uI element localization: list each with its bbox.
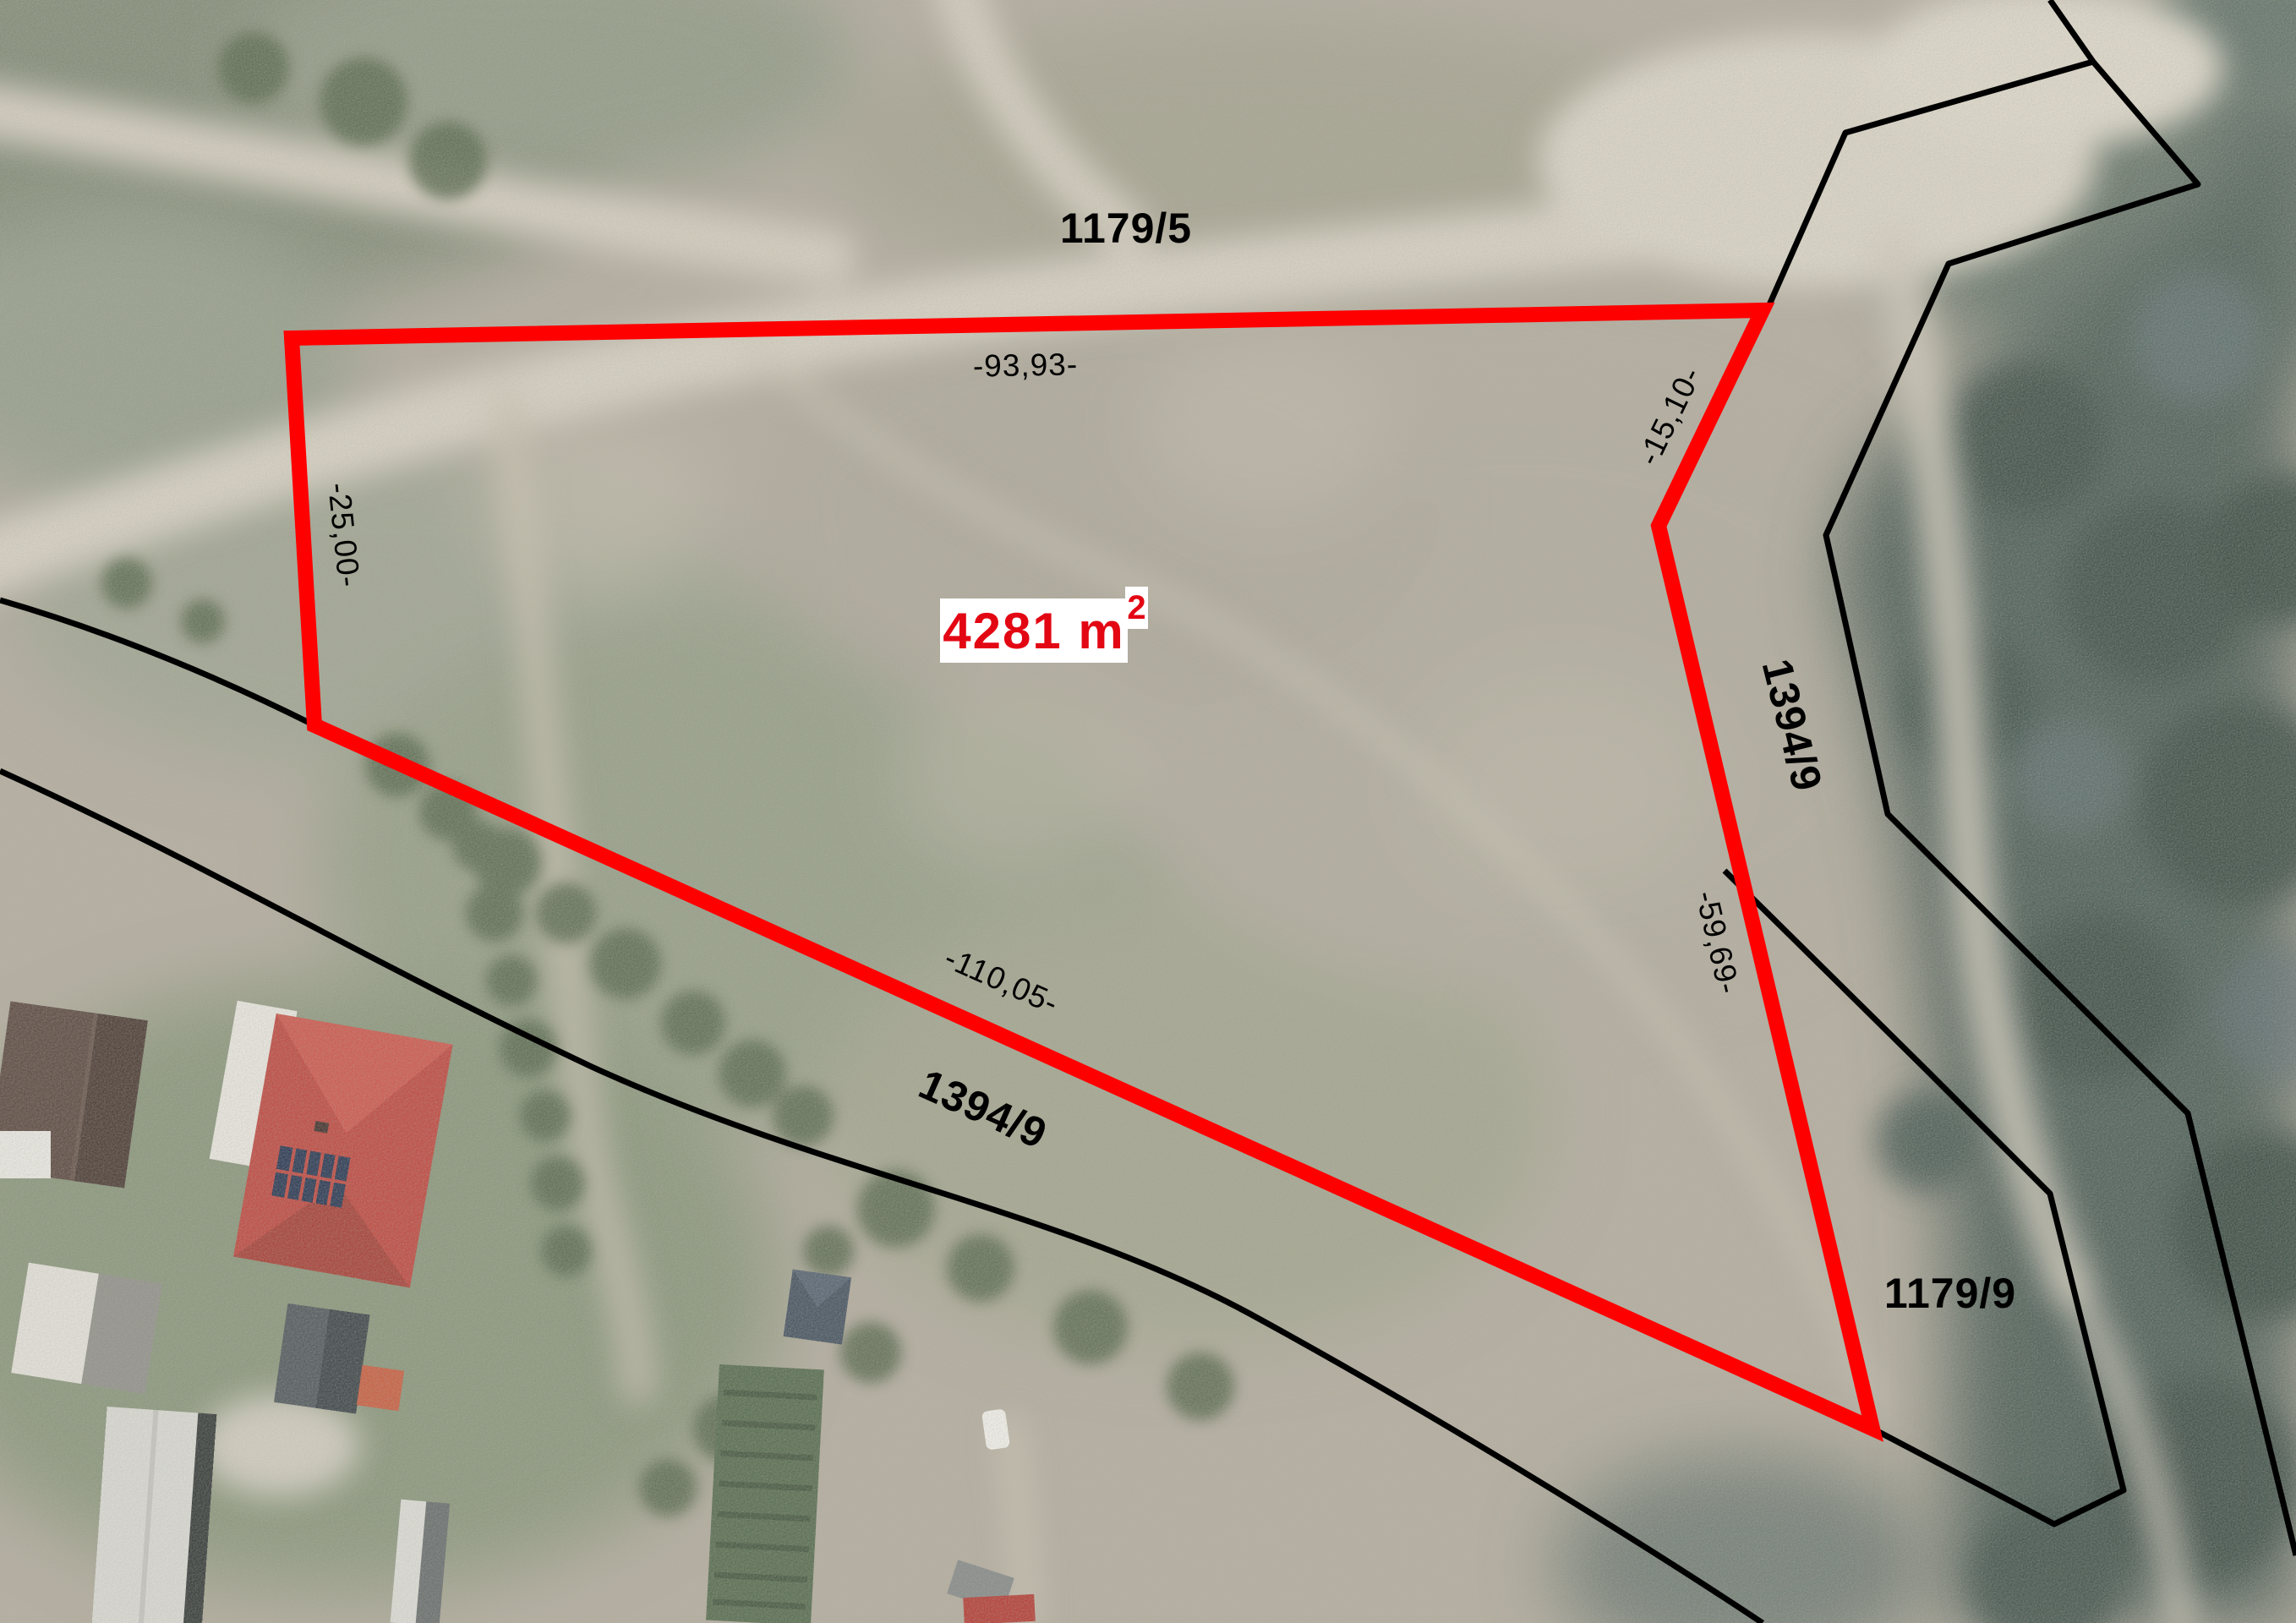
parcel-label-1179-9: 1179/9 — [1884, 1272, 2016, 1314]
area-value: 4281 m — [943, 602, 1125, 660]
area-label: 4281 m — [940, 598, 1128, 663]
parcel-label-1179-5: 1179/5 — [1060, 207, 1192, 249]
area-exponent: 2 — [1125, 587, 1148, 629]
dimension-label-top: -93,93- — [973, 348, 1079, 381]
cadastral-map-canvas: 1179/5 -93,93- -25,00- -15,10- 1394/9 -5… — [0, 0, 2296, 1623]
